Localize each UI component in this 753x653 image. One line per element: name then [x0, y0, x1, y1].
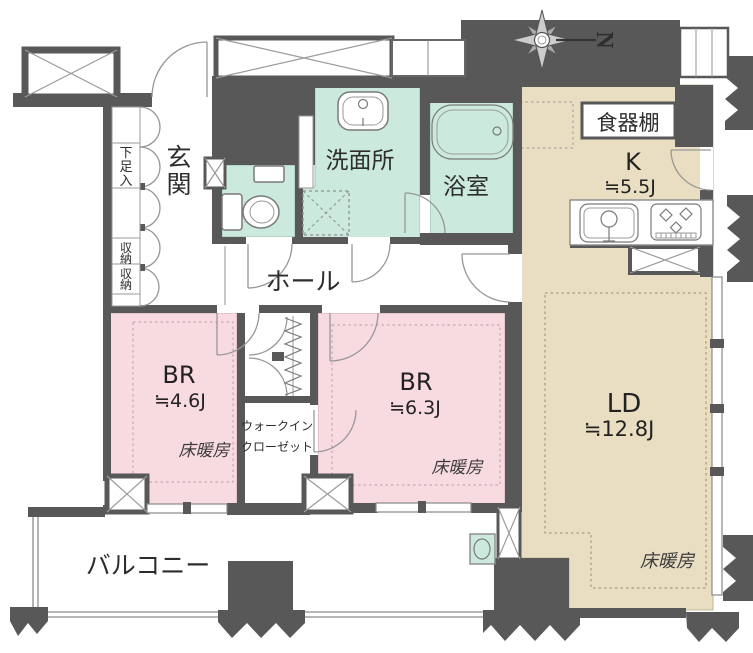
label-bedroom2: BR: [399, 368, 432, 396]
shaft-balcony: [498, 507, 520, 559]
shaft-bedroom2: [304, 476, 351, 512]
label-kitchen-size: ≒5.5J: [604, 176, 656, 198]
floor-plan-drawing: N 玄 関 下 足 入 収 納 収 納 洗面所 浴室 ホール 食器棚 K ≒5.…: [0, 0, 753, 653]
label-ld-heating: 床暖房: [640, 551, 696, 571]
label-ld: LD: [607, 389, 642, 419]
washroom-door: [352, 244, 390, 282]
room-ldk-floor: [520, 85, 713, 610]
label-bathroom: 浴室: [443, 174, 489, 199]
label-hall: ホール: [265, 269, 340, 296]
label-bedroom1: BR: [162, 361, 195, 389]
washbasin-icon: [338, 92, 388, 130]
label-balcony: バルコニー: [86, 553, 211, 580]
label-shoebox-1: 下: [119, 145, 132, 160]
shaft-top-left: [25, 50, 117, 97]
column-balcony-left: [10, 607, 48, 636]
window-bedroom2: [376, 501, 471, 513]
floor-plan-page: N 玄 関 下 足 入 収 納 収 納 洗面所 浴室 ホール 食器棚 K ≒5.…: [0, 0, 753, 653]
compass-north-label: N: [591, 31, 617, 49]
label-cupboard: 食器棚: [597, 111, 660, 135]
column-ld-bottom: [686, 612, 739, 642]
label-bedroom2-heating: 床暖房: [432, 458, 485, 477]
window-box-topright: [680, 28, 728, 77]
label-storage-upper-2: 納: [120, 252, 132, 266]
open-door-leaf: [299, 116, 313, 188]
room-floors: [110, 85, 713, 610]
label-kitchen: K: [625, 148, 642, 176]
label-bedroom2-size: ≒6.3J: [389, 397, 441, 419]
label-shoebox-2: 足: [119, 159, 132, 174]
column-balcony-center: [228, 561, 293, 611]
toilet-shelf: [254, 166, 284, 182]
window-bedroom1: [147, 502, 227, 514]
toilet-icon: [222, 194, 279, 230]
window-ld-east: [710, 277, 724, 595]
column-balcony-right: [494, 558, 569, 611]
label-washroom: 洗面所: [326, 148, 395, 173]
structure-right-lower: [723, 535, 753, 601]
label-storage-lower-2: 納: [120, 278, 132, 292]
shaft-top-closet: [216, 38, 392, 78]
wall-kitchen-ne: [675, 85, 713, 147]
shaft-bedroom1: [107, 476, 147, 512]
label-genkan-1: 玄: [166, 144, 191, 172]
shaft-kitchen-counter: [630, 247, 700, 273]
label-bedroom1-heating: 床暖房: [179, 441, 232, 460]
label-bedroom1-size: ≒4.6J: [154, 390, 206, 412]
structure-right-mid: [727, 195, 753, 282]
hall-ld-door: [462, 254, 510, 302]
slop-sink-icon: [470, 534, 495, 564]
label-genkan-2: 関: [166, 172, 191, 199]
shaft-toilet: [205, 158, 225, 188]
label-wic-line1: ウォークイン: [241, 419, 313, 433]
kitchen-counter: [570, 200, 713, 245]
room-bathroom-floor: [430, 100, 513, 235]
label-wic-line2: クローゼット: [241, 440, 313, 454]
label-shoebox-3: 入: [119, 173, 132, 188]
label-ld-size: ≒12.8J: [584, 417, 655, 441]
